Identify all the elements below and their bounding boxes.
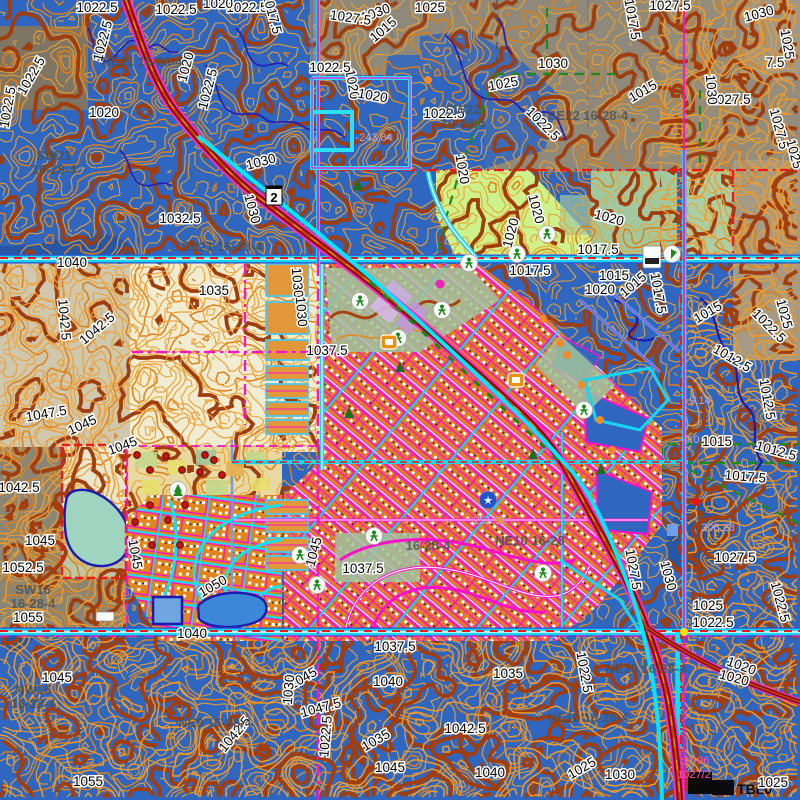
svg-text:2: 2 bbox=[270, 190, 277, 205]
svg-text:1055: 1055 bbox=[13, 610, 43, 625]
svg-text:6/-96: 6/-96 bbox=[684, 755, 709, 767]
svg-text:1030: 1030 bbox=[538, 56, 568, 71]
svg-text:1052.5: 1052.5 bbox=[2, 560, 43, 575]
svg-text:1027/2: 1027/2 bbox=[677, 769, 711, 781]
svg-text:1037.5: 1037.5 bbox=[342, 561, 383, 576]
svg-text:1025: 1025 bbox=[415, 0, 445, 15]
svg-text:1040: 1040 bbox=[373, 674, 403, 689]
svg-text:1022.5: 1022.5 bbox=[692, 615, 733, 630]
svg-text:1017.5: 1017.5 bbox=[577, 242, 618, 257]
svg-text:1040: 1040 bbox=[57, 255, 87, 270]
svg-text:1055: 1055 bbox=[73, 774, 103, 789]
svg-text:1030: 1030 bbox=[289, 267, 307, 298]
svg-text:1022.5: 1022.5 bbox=[76, 0, 117, 15]
svg-text:306.28: 306.28 bbox=[701, 522, 735, 534]
svg-text:1030: 1030 bbox=[293, 296, 311, 327]
svg-text:1035: 1035 bbox=[199, 283, 229, 298]
svg-text:1040: 1040 bbox=[177, 626, 207, 641]
svg-text:SW16: SW16 bbox=[15, 582, 50, 597]
svg-text:NE10 16-28-4: NE10 16-28-4 bbox=[606, 661, 688, 676]
svg-text:-243.84: -243.84 bbox=[355, 132, 392, 144]
svg-text:1025: 1025 bbox=[693, 598, 723, 613]
svg-text:1020: 1020 bbox=[585, 282, 615, 297]
svg-text:1035: 1035 bbox=[493, 666, 523, 681]
svg-text:1037.5: 1037.5 bbox=[306, 343, 347, 358]
svg-text:1015: 1015 bbox=[702, 434, 732, 449]
svg-text:9.14: 9.14 bbox=[689, 395, 710, 407]
svg-text:1042.5: 1042.5 bbox=[444, 721, 485, 736]
svg-text:1045: 1045 bbox=[375, 760, 405, 775]
svg-text:SW22: SW22 bbox=[445, 102, 480, 117]
svg-text:1022.5: 1022.5 bbox=[155, 2, 196, 17]
svg-text:251.06: 251.06 bbox=[473, 515, 507, 527]
svg-text:1040: 1040 bbox=[475, 765, 505, 780]
svg-text:NE10 16-28: NE10 16-28 bbox=[495, 533, 564, 548]
svg-text:1030: 1030 bbox=[605, 767, 635, 782]
svg-text:16-28-4: 16-28-4 bbox=[11, 596, 57, 611]
svg-text:1017.5: 1017.5 bbox=[509, 263, 550, 278]
svg-text:NE21 16-28-4: NE21 16-28-4 bbox=[102, 54, 184, 69]
svg-text:SW21: SW21 bbox=[36, 148, 71, 163]
svg-text:SE22 16-28-4: SE22 16-28-4 bbox=[548, 108, 629, 123]
svg-text:16-28-4: 16-28-4 bbox=[406, 538, 452, 553]
svg-text:NE9 16-28-4: NE9 16-28-4 bbox=[178, 715, 252, 730]
svg-text:16-28-4: 16-28-4 bbox=[11, 696, 57, 711]
svg-text:1022.5: 1022.5 bbox=[309, 60, 350, 75]
svg-text:-0.0: -0.0 bbox=[681, 434, 700, 446]
svg-text:1042.5: 1042.5 bbox=[0, 480, 40, 495]
svg-text:★: ★ bbox=[483, 495, 493, 507]
svg-text:16-28-4: 16-28-4 bbox=[441, 116, 487, 131]
svg-text:1030: 1030 bbox=[703, 74, 721, 105]
svg-text:1045: 1045 bbox=[25, 533, 55, 548]
svg-text:1030: 1030 bbox=[280, 674, 298, 705]
svg-text:1037.5: 1037.5 bbox=[374, 639, 415, 654]
svg-text:1027.5: 1027.5 bbox=[649, 0, 690, 13]
svg-text:7.5: 7.5 bbox=[766, 55, 785, 70]
svg-text:1020: 1020 bbox=[89, 105, 119, 120]
svg-text:1020: 1020 bbox=[203, 0, 233, 11]
svg-text:NW16: NW16 bbox=[15, 682, 51, 697]
svg-text:1025: 1025 bbox=[758, 775, 788, 790]
svg-text:1032.5: 1032.5 bbox=[159, 211, 200, 226]
svg-text:NE10 16-28-4: NE10 16-28-4 bbox=[548, 710, 630, 725]
svg-text:SE21-16-28-4: SE21-16-28-4 bbox=[182, 239, 264, 254]
svg-text:1027.5: 1027.5 bbox=[714, 550, 755, 565]
svg-text:16-28-4: 16-28-4 bbox=[32, 162, 78, 177]
